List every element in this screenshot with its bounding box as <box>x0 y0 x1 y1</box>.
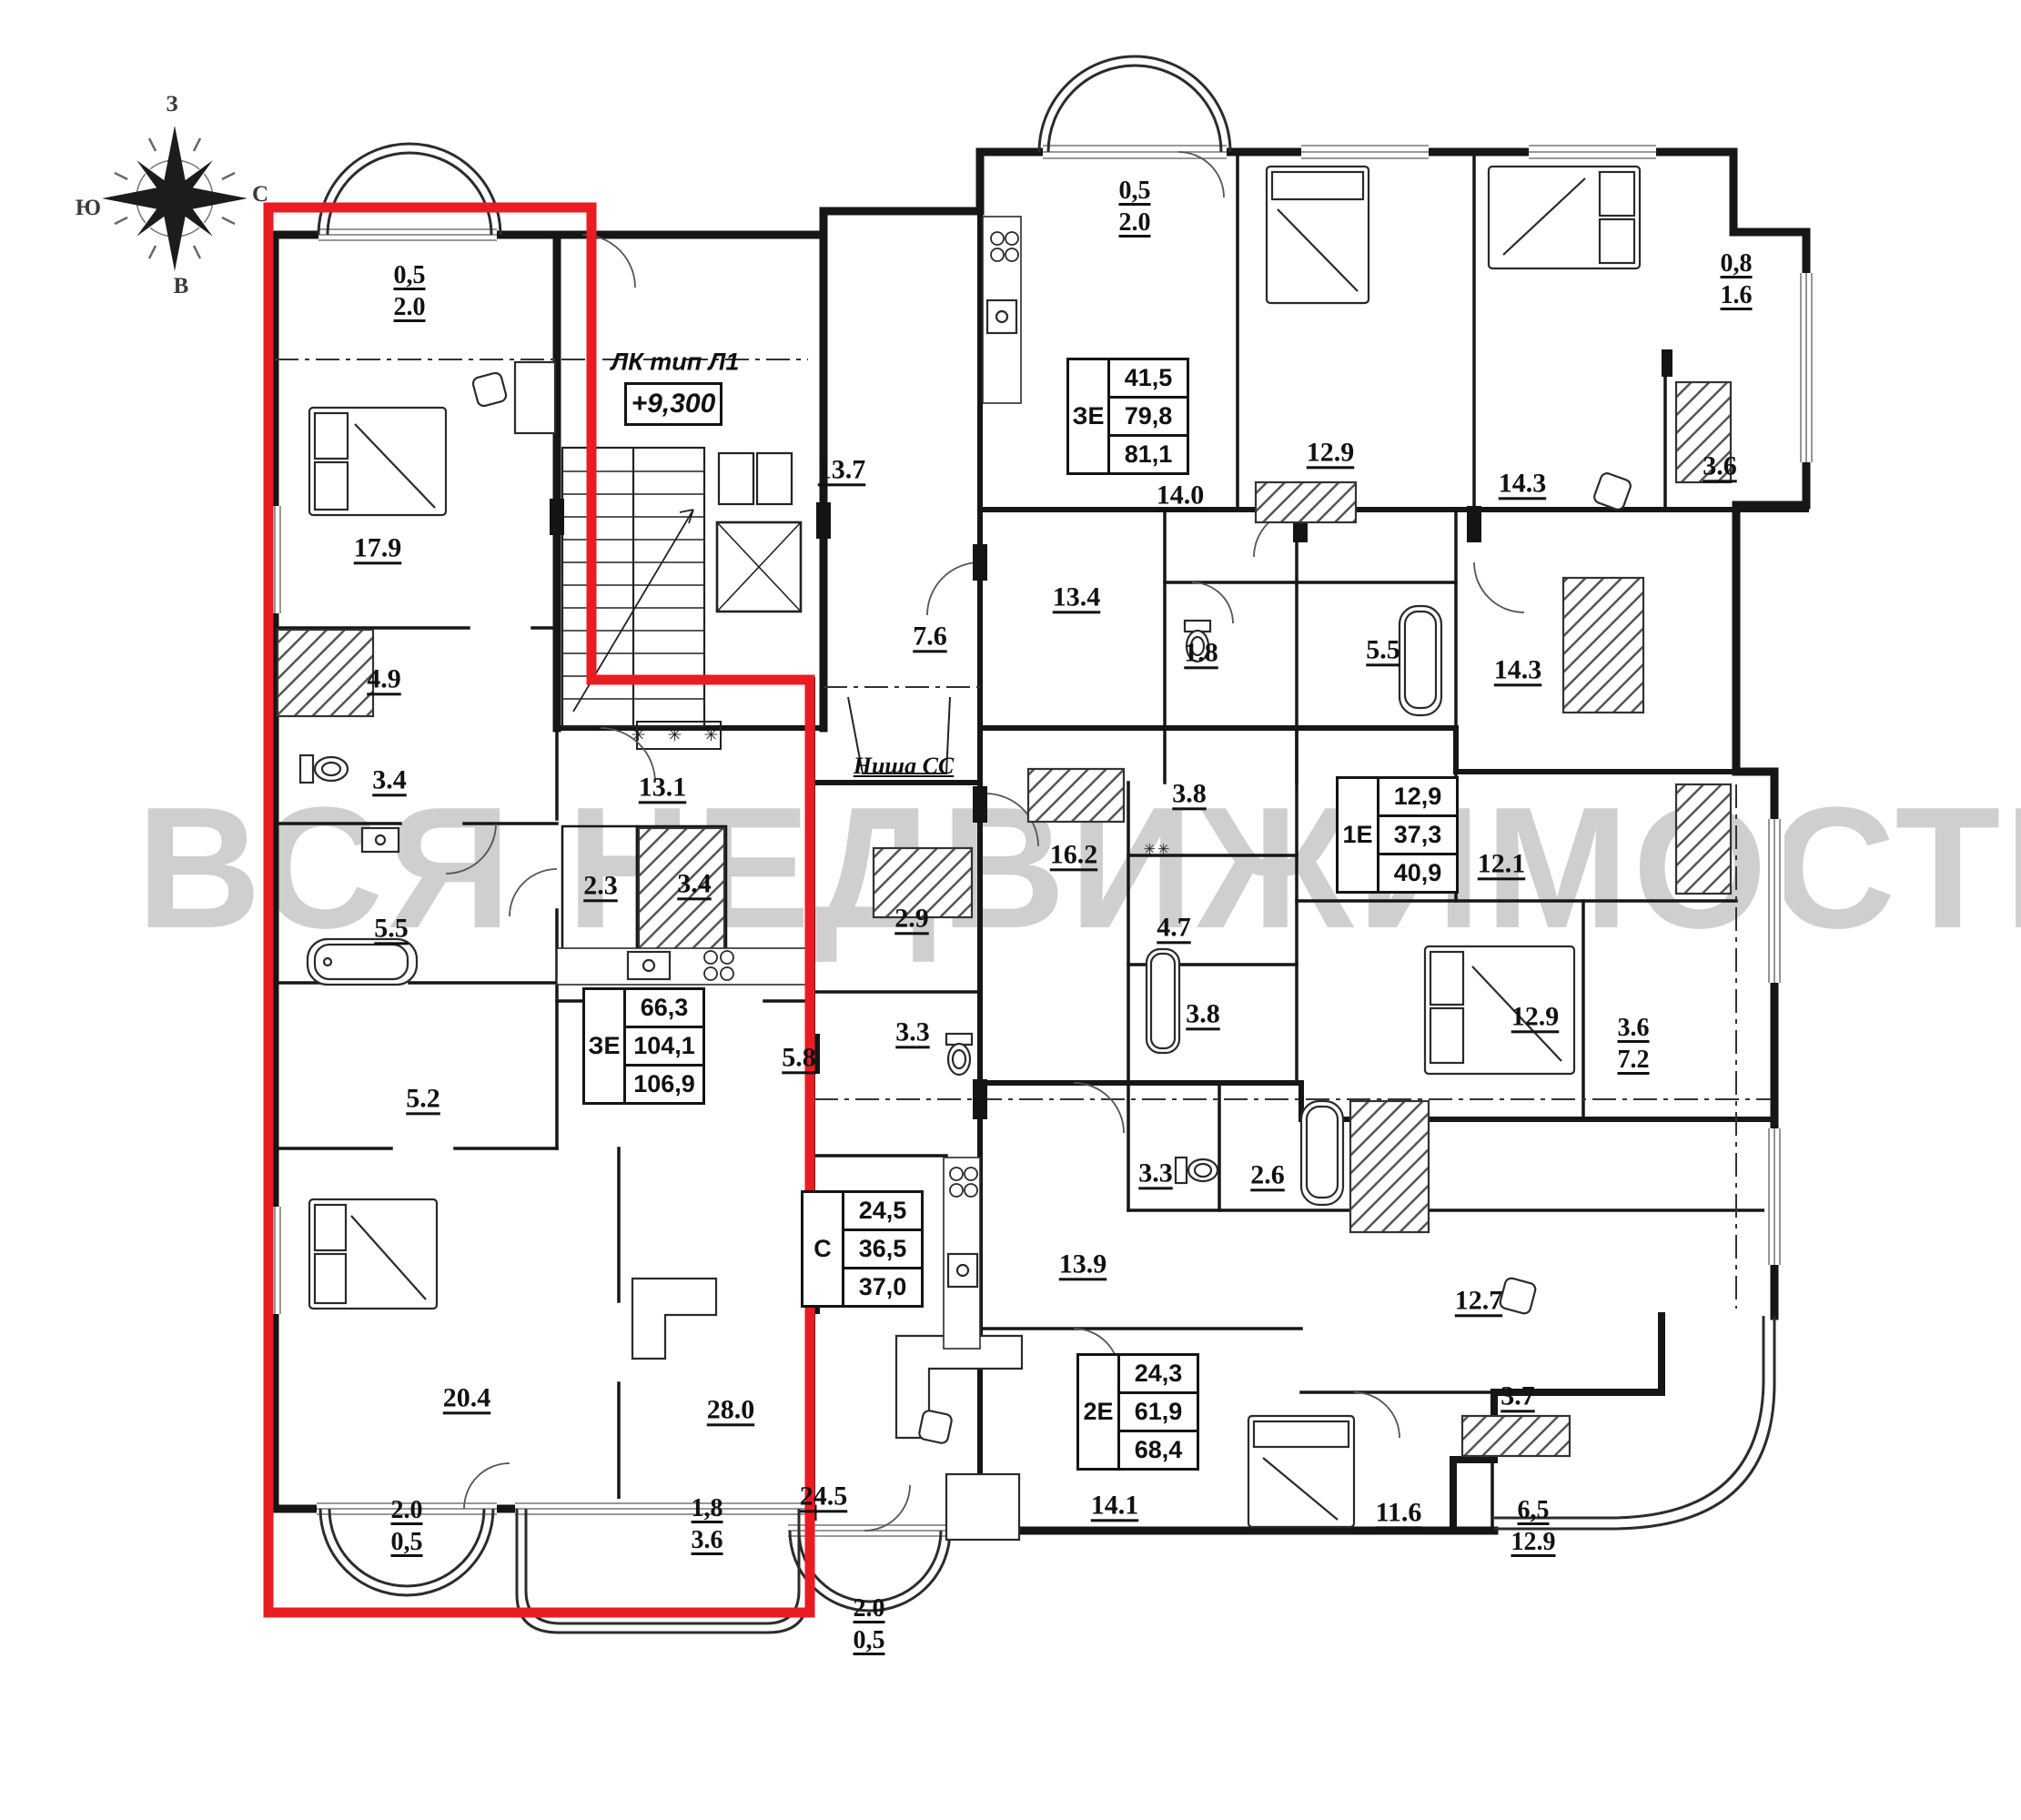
balcony-area-top: 1,8 <box>692 1492 723 1524</box>
niche-label: Ниша СС <box>854 753 955 780</box>
balcony-area-bottom: 3.6 <box>692 1524 723 1556</box>
apartment-areas: 24,5 36,5 37,0 <box>844 1193 921 1305</box>
room-area-label: 12.1 <box>1478 848 1526 879</box>
total-area: 37,0 <box>844 1269 921 1305</box>
apartment-summary-table: ЗЕ 41,5 79,8 81,1 <box>1066 358 1189 475</box>
balcony-area-top: 2.0 <box>391 1494 423 1526</box>
room-area-label: 14.3 <box>1494 654 1542 685</box>
room-area-label: 1.8 <box>1184 637 1218 668</box>
room-area-label: 3.3 <box>895 1016 930 1047</box>
room-area-label: 3.4 <box>677 868 712 899</box>
compass-south-letter: Ю <box>76 196 101 221</box>
room-area-label: 17.9 <box>354 532 402 563</box>
room-area-label: 2.9 <box>894 903 929 934</box>
balcony-area-label: 0,8 1.6 <box>1721 248 1753 311</box>
stairwell-label: ЛК тип Л1 <box>611 349 740 377</box>
room-area-label: 13.1 <box>639 772 687 803</box>
balcony-area-label: 0,5 2.0 <box>1119 175 1151 238</box>
balcony-area-top: 0,5 <box>1119 175 1151 207</box>
room-area-label: 13.7 <box>818 454 866 485</box>
balcony-area-label: 2.0 0,5 <box>391 1494 423 1558</box>
living-area: 24,3 <box>1120 1356 1197 1394</box>
balcony-area-bottom: 7.2 <box>1618 1044 1650 1076</box>
apartment-summary-table: 1Е 12,9 37,3 40,9 <box>1336 776 1459 894</box>
apartment-area: 61,9 <box>1120 1394 1197 1432</box>
balcony-area-top: 2.0 <box>854 1592 885 1624</box>
vent-symbols-small: ✳✳ <box>1144 841 1172 858</box>
floor-plan-page: ВСЯ НЕДВИЖИМОСТЬ <box>0 0 2021 1820</box>
room-area-label: 3.8 <box>1186 998 1220 1029</box>
apartment-area: 79,8 <box>1110 399 1187 437</box>
total-area: 81,1 <box>1110 437 1187 472</box>
balcony-area-bottom: 2.0 <box>1119 207 1151 238</box>
room-area-label: 3.6 <box>1703 450 1737 481</box>
room-area-label: 16.2 <box>1050 839 1098 870</box>
room-area-label: 14.1 <box>1091 1490 1139 1521</box>
balcony-area-top: 0,8 <box>1721 248 1753 279</box>
apartment-areas: 66,3 104,1 106,9 <box>626 990 702 1102</box>
balcony-area-bottom: 2.0 <box>394 291 426 323</box>
apartment-type: 2Е <box>1079 1356 1120 1468</box>
room-area-label: 12.7 <box>1455 1285 1503 1316</box>
room-area-label: 14.0 <box>1157 480 1205 511</box>
room-area-label: 5.5 <box>374 913 409 944</box>
room-area-label: 3.7 <box>1501 1380 1535 1411</box>
room-area-label: 3.3 <box>1138 1158 1173 1188</box>
room-area-label: 4.9 <box>367 663 401 694</box>
apartment-type: С <box>803 1193 844 1305</box>
compass-east-letter: В <box>174 274 189 299</box>
apartment-area: 104,1 <box>626 1028 702 1067</box>
room-area-label: 12.9 <box>1511 1001 1560 1032</box>
balcony-area-top: 3.6 <box>1618 1012 1650 1044</box>
stairwell-elevation: +9,300 <box>624 382 723 426</box>
balcony-area-bottom: 1.6 <box>1721 279 1753 311</box>
room-area-label: 3.4 <box>372 764 407 795</box>
room-area-label: 5.5 <box>1366 634 1400 665</box>
apartment-summary-table: 2Е 24,3 61,9 68,4 <box>1076 1353 1199 1471</box>
living-area: 12,9 <box>1379 779 1456 817</box>
room-area-label: 14.3 <box>1499 468 1547 499</box>
room-area-label: 13.4 <box>1053 581 1101 612</box>
balcony-area-label: 0,5 2.0 <box>394 259 426 323</box>
total-area: 68,4 <box>1120 1432 1197 1468</box>
room-area-label: 20.4 <box>443 1382 491 1413</box>
room-area-label: 13.9 <box>1059 1249 1107 1279</box>
apartment-type: ЗЕ <box>1069 360 1110 472</box>
apartment-areas: 24,3 61,9 68,4 <box>1120 1356 1197 1468</box>
balcony-area-bottom: 12.9 <box>1511 1526 1556 1558</box>
apartment-areas: 12,9 37,3 40,9 <box>1379 779 1456 891</box>
balcony-area-label: 1,8 3.6 <box>692 1492 723 1556</box>
apartment-area: 36,5 <box>844 1231 921 1269</box>
room-area-label: 11.6 <box>1376 1497 1422 1528</box>
balcony-area-top: 6,5 <box>1511 1494 1556 1526</box>
room-area-label: 2.3 <box>583 870 618 901</box>
living-area: 66,3 <box>626 990 702 1028</box>
room-area-label: 28.0 <box>707 1394 755 1425</box>
balcony-area-label: 3.6 7.2 <box>1618 1012 1650 1076</box>
apartment-summary-table: С 24,5 36,5 37,0 <box>801 1190 924 1308</box>
total-area: 106,9 <box>626 1067 702 1102</box>
room-area-label: 12.9 <box>1307 437 1355 468</box>
apartment-area: 37,3 <box>1379 817 1456 855</box>
balcony-area-top: 0,5 <box>394 259 426 291</box>
balcony-area-label: 2.0 0,5 <box>854 1592 885 1656</box>
compass-north-letter: С <box>252 182 268 207</box>
total-area: 40,9 <box>1379 855 1456 891</box>
room-area-label: 5.8 <box>782 1042 816 1073</box>
room-area-label: 24.5 <box>800 1481 848 1512</box>
room-area-label: 4.7 <box>1157 912 1191 943</box>
apartment-type: 1Е <box>1339 779 1379 891</box>
room-area-label: 2.6 <box>1250 1159 1285 1190</box>
apartment-type: ЗЕ <box>585 990 626 1102</box>
living-area: 41,5 <box>1110 360 1187 399</box>
apartment-summary-table: ЗЕ 66,3 104,1 106,9 <box>582 987 705 1105</box>
room-area-label: 5.2 <box>406 1083 440 1114</box>
compass-west-letter: З <box>166 92 177 117</box>
balcony-area-bottom: 0,5 <box>854 1624 885 1656</box>
apartment-areas: 41,5 79,8 81,1 <box>1110 360 1187 472</box>
balcony-area-label: 6,5 12.9 <box>1511 1494 1556 1558</box>
balcony-area-bottom: 0,5 <box>391 1526 423 1558</box>
room-area-label: 3.8 <box>1172 778 1207 809</box>
vent-symbols: ✳ ✳ ✳ <box>632 725 727 745</box>
room-area-label: 7.6 <box>913 621 947 652</box>
living-area: 24,5 <box>844 1193 921 1231</box>
labels-layer: 17.94.93.45.52.33.413.15.220.428.024.55.… <box>0 0 2021 1820</box>
